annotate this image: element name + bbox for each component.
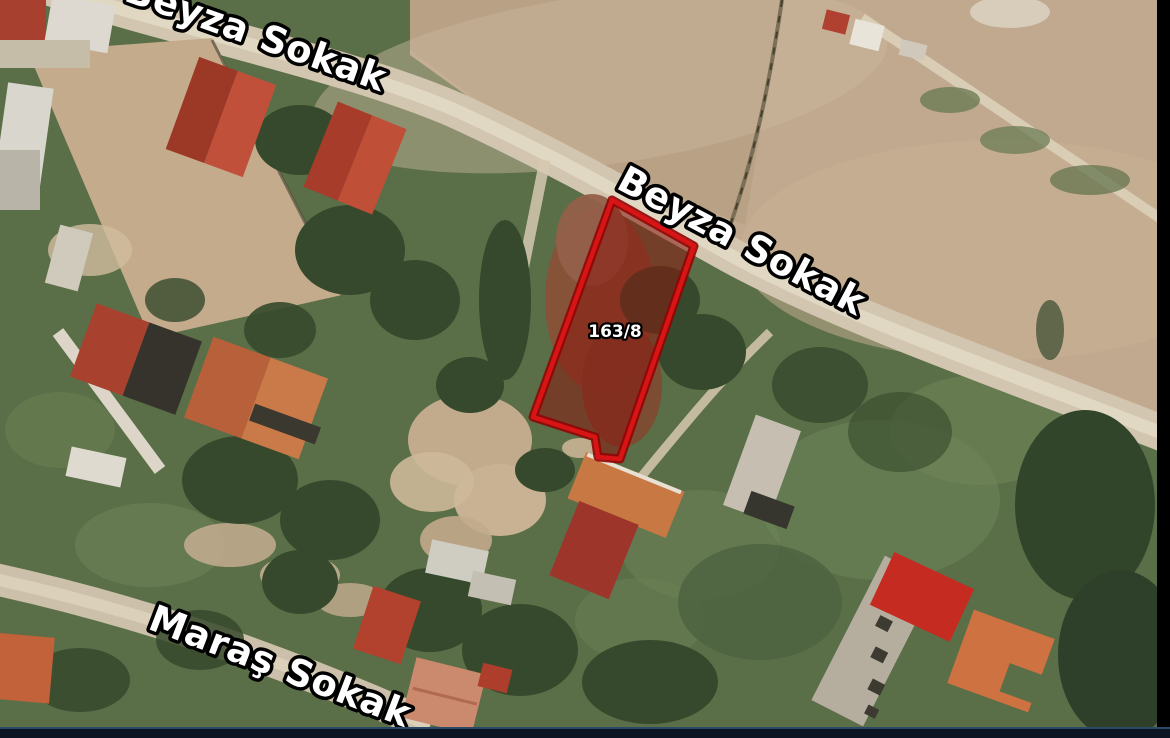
satellite-imagery: 163/8 Beyza Sokak Beyza Sokak Maraş Soka… — [0, 0, 1170, 738]
parcel-number-label: 163/8 — [588, 322, 642, 342]
letterbox-bar-right — [1157, 0, 1170, 738]
satellite-map-viewport[interactable]: 163/8 Beyza Sokak Beyza Sokak Maraş Soka… — [0, 0, 1170, 738]
letterbox-bar-bottom — [0, 727, 1170, 738]
